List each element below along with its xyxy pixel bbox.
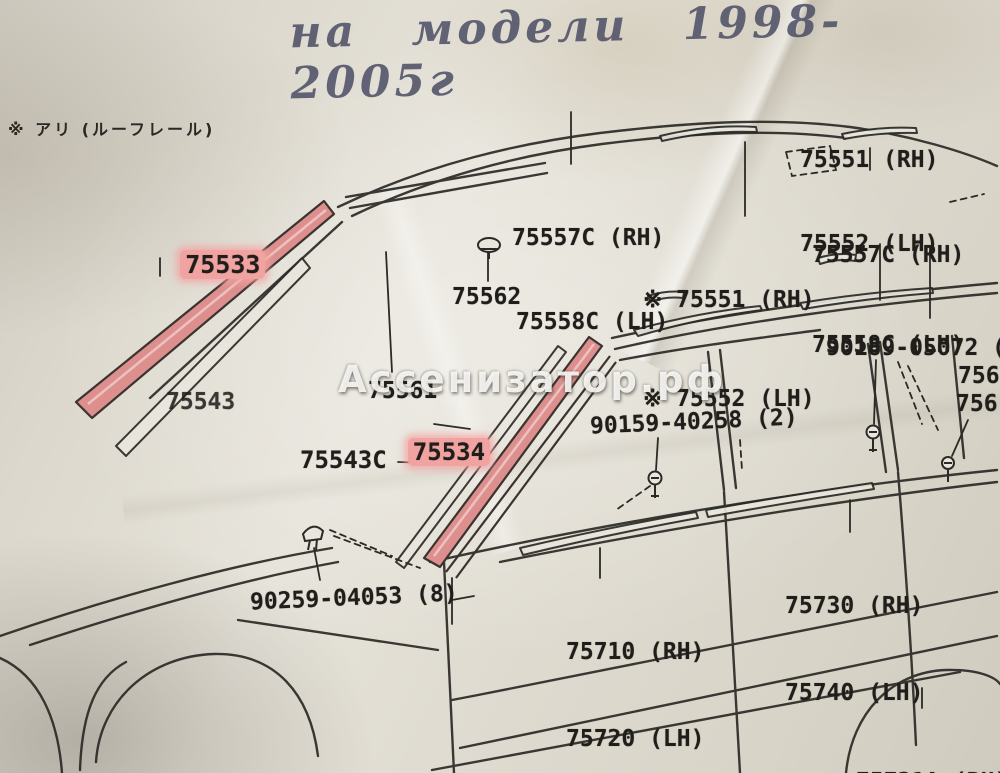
parts-catalog-photo: ※ アリ (ルーフレール) на модели 1998-2005г 75551… <box>0 0 1000 773</box>
push-clip <box>303 527 323 550</box>
label-ws-side-highlighted: 75533 <box>120 223 265 307</box>
label-windshield-upper: 75562 <box>452 283 521 311</box>
jp-roofrail-note: ※ アリ (ルーフレール) <box>8 116 215 140</box>
label-quarter-moulding: 75731A (RH) 75732A (LH) <box>856 710 1000 773</box>
label-clip-right: 75557C (RH) 75558C (LH) <box>812 180 964 420</box>
label-front-door-moulding: 75710 (RH) 75720 (LH) <box>566 580 704 773</box>
screw-rear <box>867 426 880 453</box>
screw-right-edge <box>942 457 954 482</box>
rear-door-belt-moulding <box>706 483 874 517</box>
label-pillar-inner: 75543C <box>300 446 387 474</box>
label-ws-side-inner: 75543 <box>166 388 235 416</box>
site-watermark: Ассенизатор.рф <box>338 358 726 401</box>
label-right-edge-1: 756 <box>958 362 1000 390</box>
label-grommet-rear: 90189-05072 (2) <box>826 334 1000 362</box>
label-drip-moulding: ※ 75551 (RH) ※ 75552 (LH) <box>643 218 815 482</box>
label-right-edge-2: 756 <box>956 390 998 418</box>
front-wheel-arch <box>96 654 318 762</box>
front-door-belt-moulding <box>520 512 698 555</box>
